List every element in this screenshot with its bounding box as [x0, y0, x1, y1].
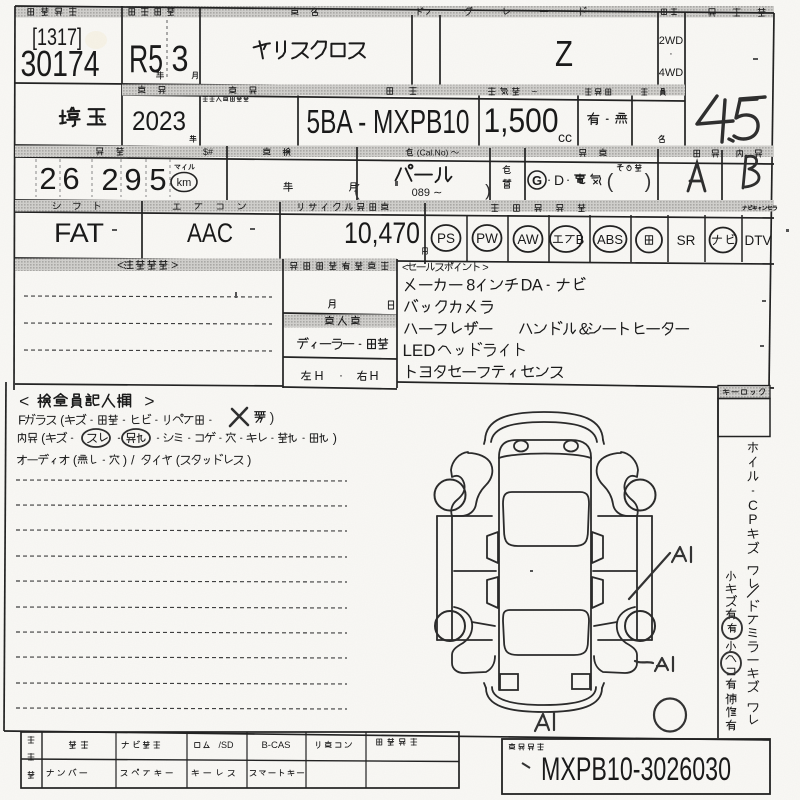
svg-text:): ) — [333, 431, 337, 445]
svg-text:): ) — [123, 453, 127, 467]
svg-text:(: ( — [607, 171, 614, 193]
svg-text:DTV: DTV — [745, 233, 772, 248]
svg-text:A: A — [532, 277, 543, 295]
svg-text:<: < — [19, 391, 29, 411]
svg-text:·: · — [669, 48, 673, 60]
svg-text:): ) — [645, 171, 652, 193]
svg-text:$#: $# — [203, 147, 213, 157]
svg-text:PS: PS — [437, 231, 455, 246]
svg-text:·: · — [547, 172, 551, 187]
svg-text:<: < — [402, 262, 408, 274]
svg-text:P: P — [748, 512, 757, 527]
svg-text:AW: AW — [517, 232, 539, 247]
svg-text:/SD: /SD — [218, 740, 234, 750]
svg-text:(: ( — [354, 181, 360, 200]
svg-text:): ) — [270, 409, 275, 425]
svg-text:>: > — [482, 262, 488, 274]
svg-text:AAC: AAC — [187, 218, 233, 248]
svg-text:D: D — [554, 172, 564, 188]
svg-text:10,470: 10,470 — [344, 217, 420, 250]
svg-text:5BA - MXPB10: 5BA - MXPB10 — [307, 103, 470, 140]
svg-text:H: H — [314, 369, 323, 383]
svg-text:LED: LED — [402, 341, 435, 360]
svg-text:ABS: ABS — [597, 232, 623, 247]
svg-text:H: H — [369, 369, 378, 383]
svg-text:3: 3 — [172, 38, 189, 79]
svg-text:B: B — [576, 232, 585, 247]
svg-text:<: < — [117, 259, 124, 272]
svg-text:2023: 2023 — [132, 106, 186, 136]
svg-text:G: G — [532, 173, 542, 188]
svg-text:9: 9 — [124, 162, 141, 197]
svg-text:/: / — [131, 453, 135, 467]
svg-text:>: > — [171, 259, 178, 272]
svg-text:C: C — [748, 498, 758, 513]
svg-text:km: km — [177, 177, 192, 189]
svg-text:SR: SR — [677, 233, 696, 248]
svg-text:2: 2 — [101, 162, 118, 197]
svg-text:2: 2 — [39, 161, 56, 196]
svg-text:8: 8 — [466, 277, 475, 295]
svg-text:&: & — [579, 321, 590, 339]
svg-text:30174: 30174 — [21, 43, 100, 84]
svg-text:): ) — [247, 453, 251, 467]
svg-text:2WD: 2WD — [659, 35, 684, 47]
svg-text:Z: Z — [555, 33, 573, 74]
svg-text:PW: PW — [476, 231, 498, 246]
svg-text:6: 6 — [62, 161, 79, 196]
svg-text:4WD: 4WD — [659, 67, 684, 79]
svg-text:MXPB10-3026030: MXPB10-3026030 — [541, 751, 731, 787]
svg-text:cc: cc — [558, 129, 572, 145]
svg-text:1,500: 1,500 — [484, 102, 559, 140]
svg-text:·: · — [566, 172, 570, 187]
svg-text:B-CAS: B-CAS — [261, 740, 290, 751]
svg-text:): ) — [485, 181, 491, 200]
svg-text:~: ~ — [531, 87, 537, 98]
svg-text:·: · — [339, 368, 343, 382]
svg-text:FAT: FAT — [54, 218, 104, 248]
svg-text:(Cal.No) 〜: (Cal.No) 〜 — [417, 148, 460, 158]
svg-text:5: 5 — [149, 162, 166, 197]
svg-text:>: > — [144, 391, 154, 411]
svg-text:F: F — [18, 413, 26, 427]
svg-text:D: D — [521, 277, 533, 295]
svg-text:089 ∼: 089 ∼ — [412, 187, 443, 199]
